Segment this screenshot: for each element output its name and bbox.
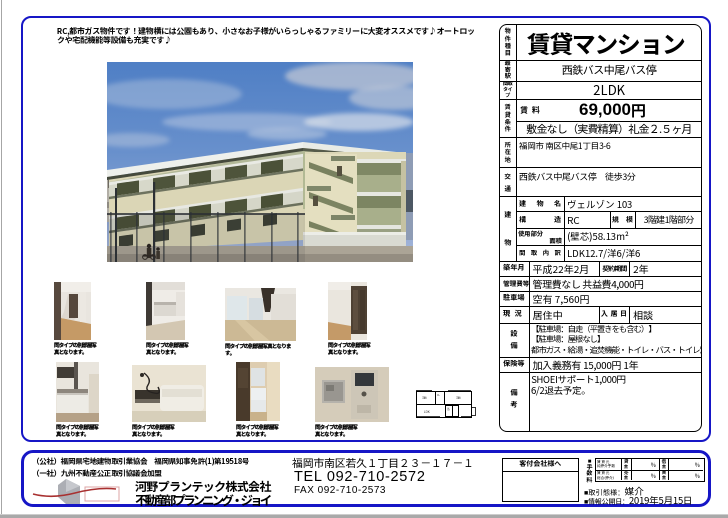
svg-text:LDK: LDK <box>424 409 431 414</box>
svg-text:洋6: 洋6 <box>422 395 427 400</box>
svg-text:洋6: 洋6 <box>456 395 461 400</box>
svg-text:浴: 浴 <box>447 407 450 411</box>
